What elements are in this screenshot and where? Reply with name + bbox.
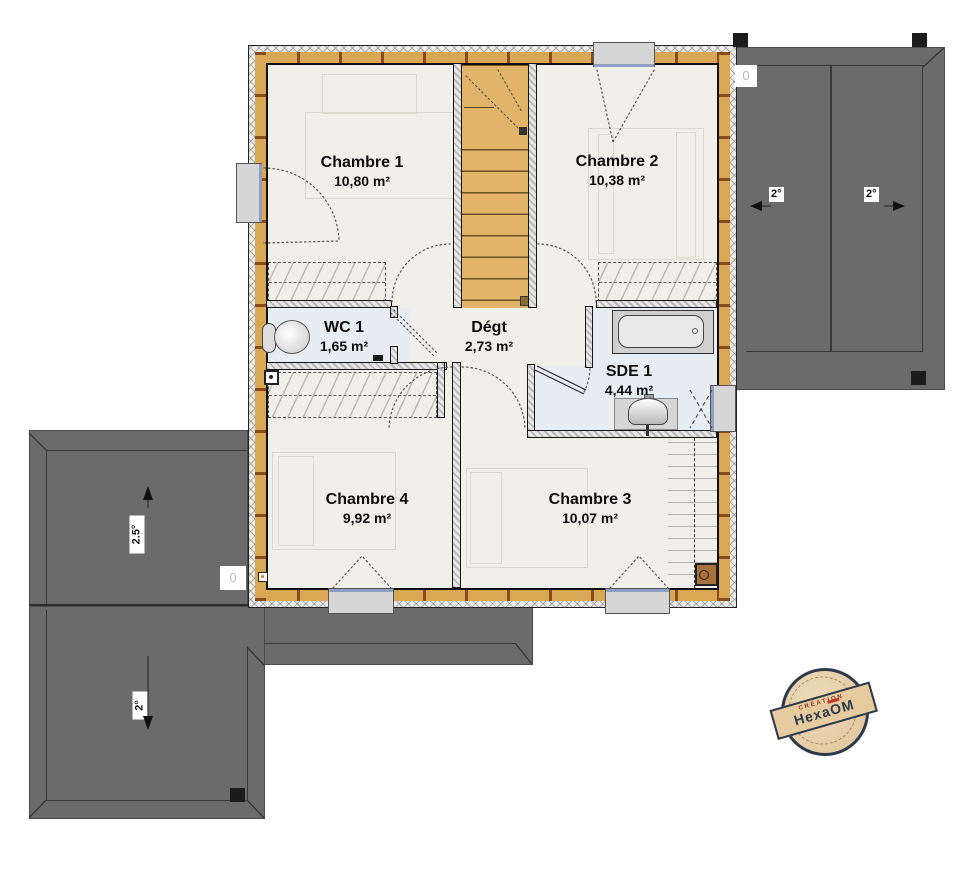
duct-symbol bbox=[695, 563, 718, 586]
room-area: 9,92 m² bbox=[326, 509, 409, 527]
hexaom-logo-stamp: CRÉATION HexaOM bbox=[770, 657, 880, 767]
electrical-outlet-symbol bbox=[264, 370, 279, 385]
roof-post bbox=[733, 33, 748, 47]
roof-right-ridge-line bbox=[830, 65, 832, 352]
furniture-shelf bbox=[322, 74, 417, 114]
door-symbol bbox=[373, 355, 383, 361]
interior-wall-wc-bottom bbox=[266, 362, 447, 370]
room-area: 1,65 m² bbox=[320, 337, 368, 355]
room-label-wc1: WC 1 1,65 m² bbox=[320, 318, 368, 355]
roof-post bbox=[912, 33, 927, 47]
roof-left-upper-inner-line bbox=[46, 450, 47, 604]
roof-slope-label: 2° bbox=[769, 187, 784, 202]
roof-left-lower-inner-line bbox=[247, 648, 248, 800]
window-glass bbox=[711, 386, 714, 431]
roof-right-inner-bottom-line bbox=[746, 351, 923, 352]
interior-wall-chambre4-right bbox=[452, 362, 461, 588]
roof-left-lower-inner-line bbox=[46, 800, 247, 801]
exterior-wall-insulation-right bbox=[719, 52, 730, 601]
room-label-degt: Dégt 2,73 m² bbox=[465, 318, 513, 355]
room-label-chambre4: Chambre 4 9,92 m² bbox=[326, 490, 409, 527]
closet-chambre1 bbox=[268, 262, 386, 302]
interior-wall-stub bbox=[390, 346, 398, 364]
room-name: Dégt bbox=[465, 318, 513, 337]
room-name: Chambre 2 bbox=[576, 152, 659, 171]
toilet-bowl bbox=[274, 320, 310, 354]
interior-wall-stub bbox=[390, 306, 398, 318]
room-label-sde1: SDE 1 4,44 m² bbox=[605, 362, 653, 399]
roof-right-inner-top-line bbox=[746, 65, 923, 66]
room-name: SDE 1 bbox=[605, 362, 653, 381]
staircase-break-line bbox=[464, 107, 494, 108]
washbasin-drain bbox=[646, 425, 649, 436]
window-glass bbox=[259, 164, 262, 222]
roof-slope-label: 2° bbox=[133, 692, 148, 720]
staircase-newel-post bbox=[519, 127, 527, 135]
room-label-chambre3: Chambre 3 10,07 m² bbox=[549, 490, 632, 527]
interior-wall-closet-stub bbox=[437, 362, 445, 418]
room-label-chambre2: Chambre 2 10,38 m² bbox=[576, 152, 659, 189]
furniture-detail bbox=[278, 456, 314, 546]
interior-wall bbox=[596, 300, 717, 308]
staircase-wall-right bbox=[528, 63, 537, 308]
room-area: 4,44 m² bbox=[605, 381, 653, 399]
room-name: Chambre 4 bbox=[326, 490, 409, 509]
room-name: Chambre 1 bbox=[321, 153, 404, 172]
window-glass bbox=[329, 589, 393, 592]
room-area: 10,07 m² bbox=[549, 509, 632, 527]
washbasin bbox=[628, 398, 668, 425]
level-marker: 0 bbox=[735, 65, 757, 87]
room-area: 10,80 m² bbox=[321, 172, 404, 190]
closet-chambre4 bbox=[268, 372, 437, 418]
furniture-detail bbox=[676, 132, 696, 258]
room-name: WC 1 bbox=[320, 318, 368, 337]
roof-left-lower-inner-line bbox=[46, 610, 47, 800]
roof-right bbox=[736, 47, 945, 390]
roof-right-inner-right-line bbox=[922, 65, 923, 352]
closet-chambre2 bbox=[598, 262, 717, 302]
roof-left-division-line bbox=[29, 604, 248, 606]
room-area: 2,73 m² bbox=[465, 337, 513, 355]
room-label-chambre1: Chambre 1 10,80 m² bbox=[321, 153, 404, 190]
floor-plan-canvas: 2° 2° 2.5° 2° bbox=[0, 0, 960, 872]
room-area: 10,38 m² bbox=[576, 171, 659, 189]
interior-wall-sde-lower-left bbox=[527, 364, 535, 438]
interior-wall-sde-bottom bbox=[527, 430, 717, 438]
level-marker: 0 bbox=[220, 566, 246, 590]
staircase-wall-left bbox=[453, 63, 462, 308]
interior-wall-sde-upper-left bbox=[585, 306, 593, 368]
roof-left-upper-inner-line bbox=[46, 450, 248, 451]
room-name: Chambre 3 bbox=[549, 490, 632, 509]
roof-slope-label: 2° bbox=[864, 187, 879, 202]
utility-symbol bbox=[258, 572, 268, 582]
roof-slope-label: 2.5° bbox=[130, 516, 145, 554]
staircase-steps bbox=[462, 129, 528, 308]
furniture-detail bbox=[470, 472, 502, 564]
sde-floor bbox=[535, 366, 595, 430]
roof-post bbox=[911, 371, 926, 385]
interior-wall bbox=[266, 300, 392, 308]
exterior-wall-insulation-top bbox=[255, 52, 730, 63]
roof-strip-inner-line bbox=[264, 643, 515, 644]
bathtub-drain bbox=[692, 328, 698, 334]
roof-post bbox=[230, 788, 245, 802]
window-glass bbox=[606, 589, 669, 592]
window-glass bbox=[594, 64, 654, 67]
staircase bbox=[462, 65, 528, 308]
